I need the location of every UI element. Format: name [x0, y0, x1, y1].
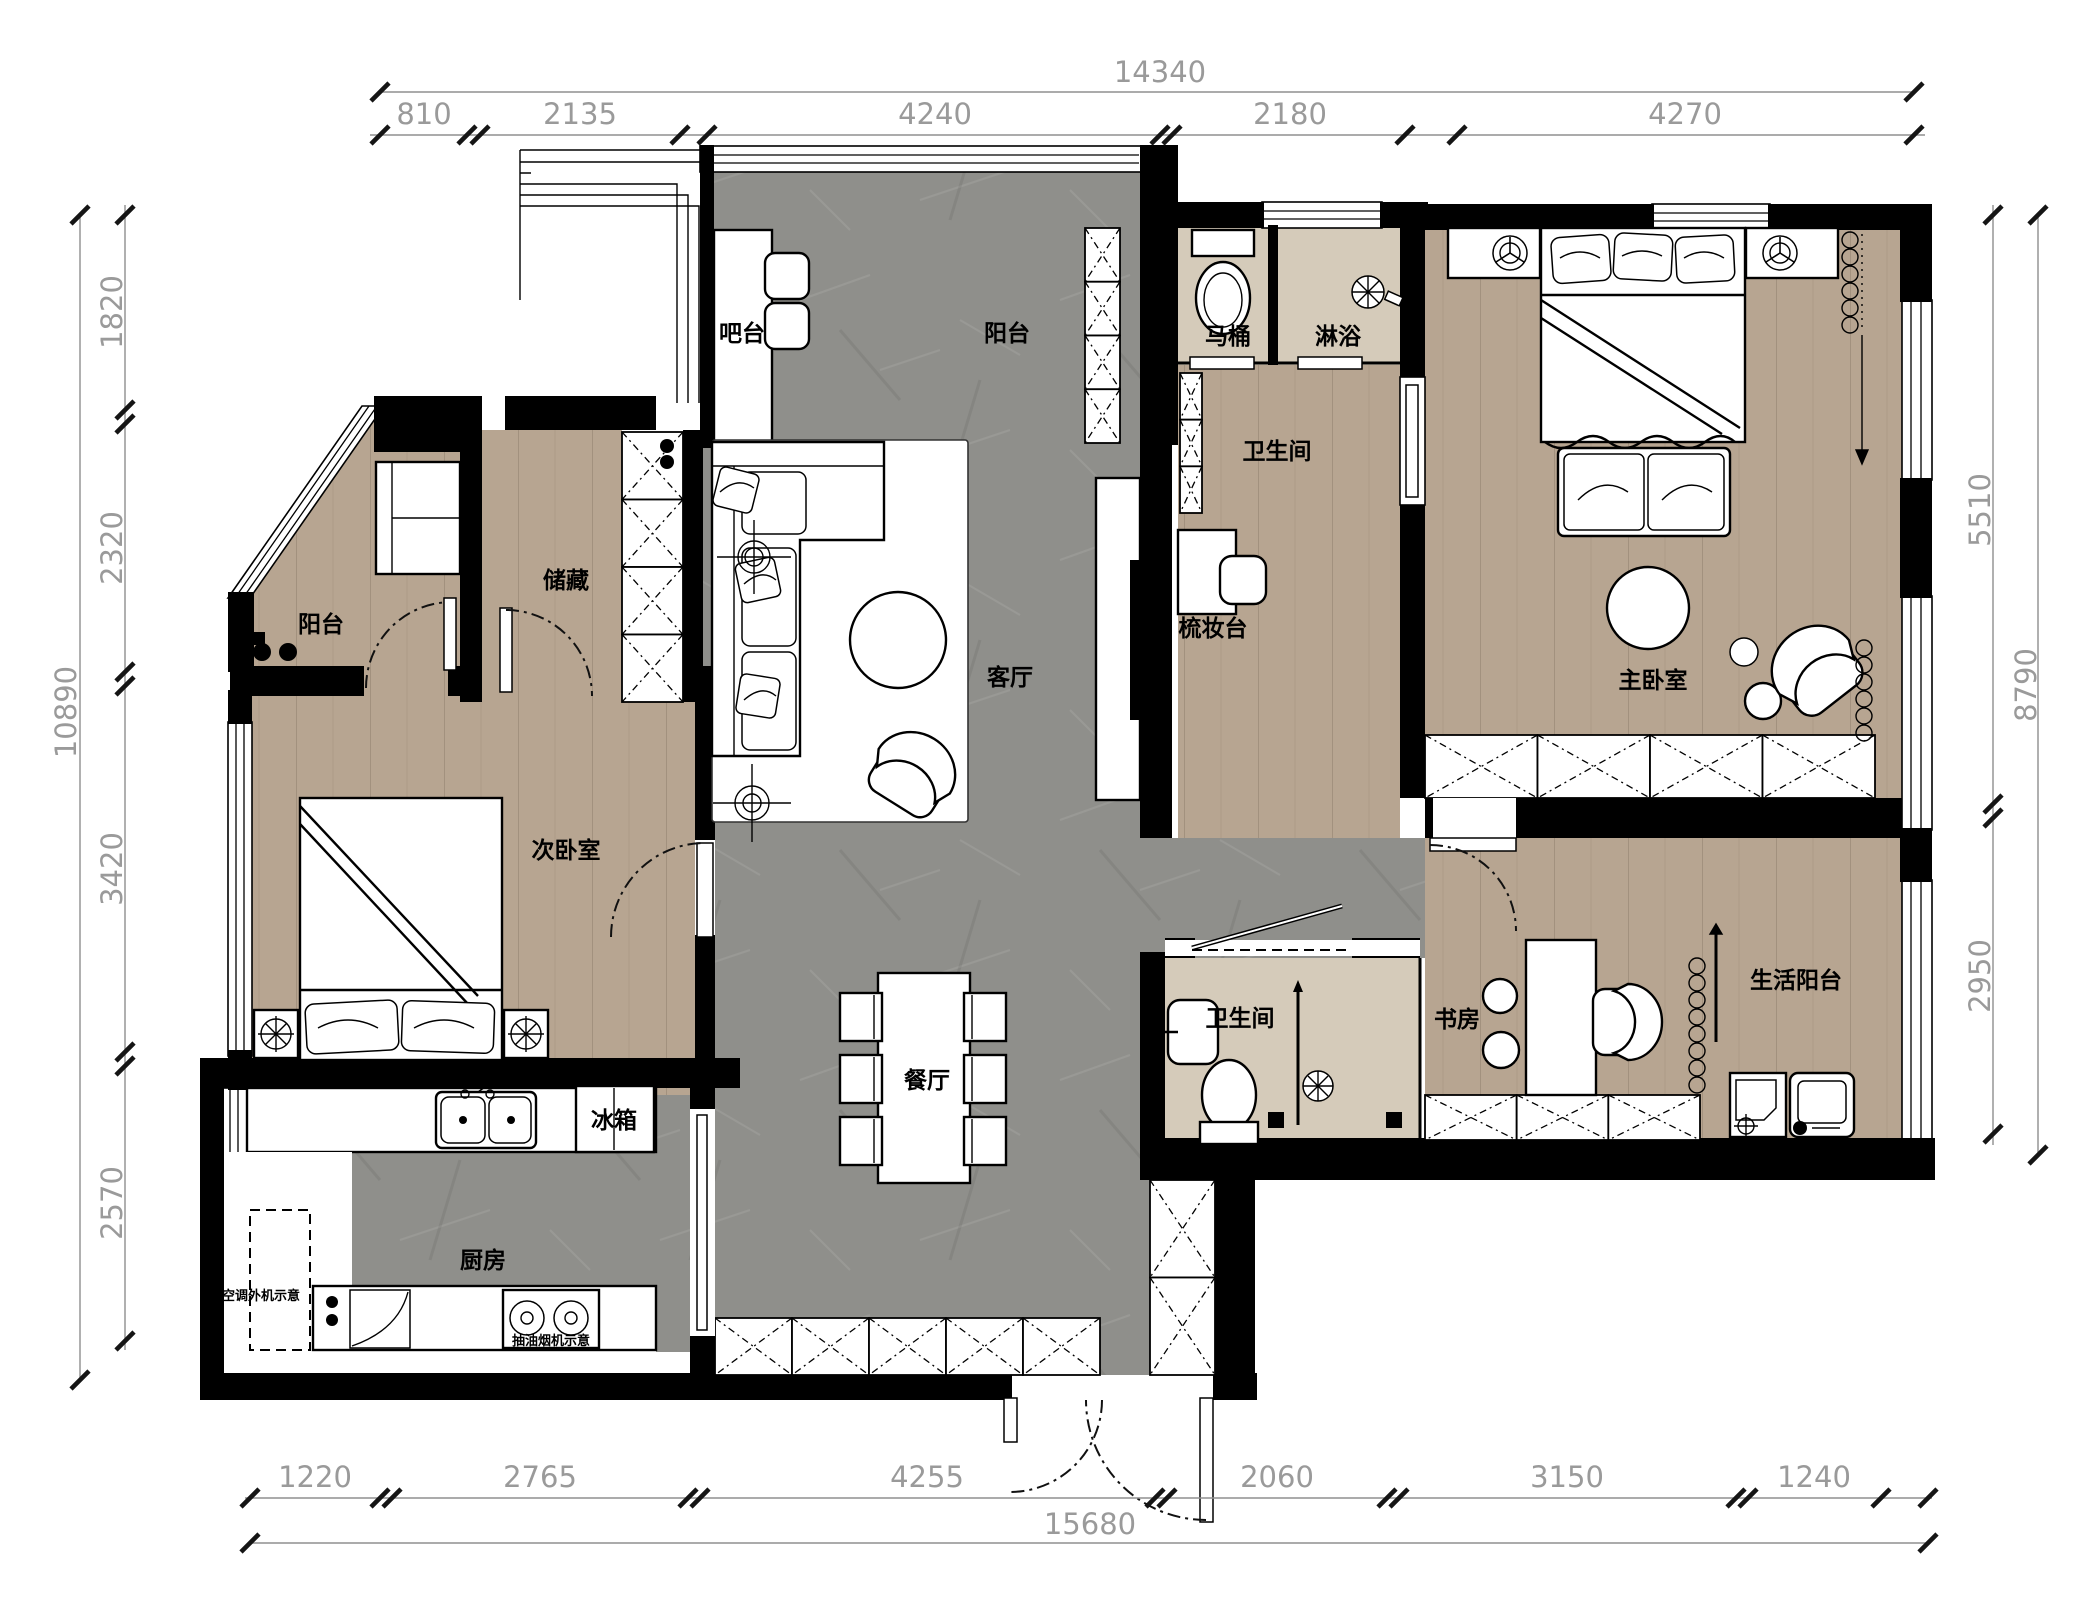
toilet-fixture — [1192, 230, 1254, 334]
dim-bottom-3: 2060 — [1240, 1460, 1314, 1494]
label-master-bedroom: 主卧室 — [1619, 667, 1688, 694]
dining-chair — [964, 1117, 1006, 1165]
dim-left-2: 3420 — [95, 832, 129, 906]
dim-bottom-overall: 15680 — [1044, 1507, 1136, 1541]
label-shower-room: 淋浴 — [1315, 324, 1362, 350]
dining-chair — [964, 993, 1006, 1041]
round-rug — [1607, 567, 1689, 649]
door-leaf-storage — [500, 608, 512, 692]
floor-plan-canvas: 吧台 阳台 马桶 淋浴 卫生间 梳妆台 主卧室 储藏 阳台 客厅 次卧室 餐厅 … — [0, 0, 2080, 1615]
label-living: 客厅 — [987, 664, 1033, 691]
label-bar: 吧台 — [719, 320, 765, 347]
dim-bottom-5: 1240 — [1777, 1460, 1851, 1494]
lamp-icon-right — [1763, 236, 1797, 270]
label-second-bedroom: 次卧室 — [532, 837, 601, 864]
dim-top-overall: 14340 — [1114, 55, 1206, 89]
dim-top-1: 2135 — [543, 97, 617, 131]
pocket-door-leaf — [1406, 385, 1418, 497]
dim-right-1: 2950 — [1963, 939, 1997, 1013]
label-bathroom-guest: 卫生间 — [1206, 1006, 1275, 1032]
label-toilet-room: 马桶 — [1205, 324, 1251, 350]
plant-pot-icon — [253, 643, 271, 661]
dim-right-0: 5510 — [1963, 473, 1997, 547]
desk-chair — [1593, 984, 1662, 1060]
cabinet-handle — [660, 439, 674, 453]
label-range-hood: 抽油烟机示意 — [512, 1333, 590, 1349]
floor-kitchen — [352, 1151, 690, 1286]
dim-bottom-4: 3150 — [1530, 1460, 1604, 1494]
dining-chair — [964, 1055, 1006, 1103]
window-bedroom-west — [228, 722, 252, 1056]
shower-head-icon — [1303, 1071, 1333, 1101]
dim-left-overall: 10890 — [49, 666, 83, 758]
window-master-north — [1652, 204, 1770, 230]
window-bath-north — [1262, 202, 1382, 228]
plant-pot-icon — [279, 643, 297, 661]
cabinet-handle — [660, 455, 674, 469]
door-leaf-bedroom2 — [697, 843, 713, 937]
label-kitchen: 厨房 — [460, 1247, 506, 1274]
dining-chair — [840, 993, 882, 1041]
label-balcony-left: 阳台 — [298, 611, 344, 638]
toilet-fixture — [1200, 1060, 1258, 1144]
dim-left-3: 2570 — [95, 1166, 129, 1240]
washing-machine — [1790, 1073, 1854, 1137]
dining-chair — [840, 1117, 882, 1165]
door-gap-study — [1433, 798, 1516, 838]
floor-kitchen-strip — [656, 1085, 690, 1352]
master-bed-pillows — [1550, 233, 1735, 284]
ottoman — [1730, 638, 1758, 666]
pouf — [1483, 1032, 1519, 1068]
label-ac-outdoor: 空调外机示意 — [222, 1288, 300, 1304]
label-vanity: 梳妆台 — [1179, 615, 1248, 642]
window-master-east-2 — [1902, 596, 1932, 830]
door-sliding-kitchen — [690, 1109, 715, 1336]
double-sink — [436, 1082, 536, 1148]
label-bathroom-master: 卫生间 — [1243, 439, 1312, 465]
label-dining: 餐厅 — [904, 1068, 950, 1094]
dim-bottom-1: 2765 — [503, 1460, 577, 1494]
dim-left-0: 1820 — [95, 275, 129, 349]
dim-top-0: 810 — [396, 97, 451, 131]
coffee-table — [850, 592, 946, 688]
label-balcony-top: 阳台 — [984, 320, 1030, 347]
window-north-balcony — [700, 146, 1142, 172]
dim-bottom-2: 4255 — [890, 1460, 964, 1494]
study-desk — [1526, 940, 1596, 1095]
tv — [1130, 560, 1139, 720]
dining-chair — [840, 1055, 882, 1103]
laundry-sink — [1730, 1073, 1786, 1138]
door-entry-double — [1004, 1398, 1213, 1522]
exterior-contour-lines — [520, 150, 700, 403]
dim-top-3: 2180 — [1253, 97, 1327, 131]
dim-right-overall: 8790 — [2009, 648, 2043, 722]
dim-top-4: 4270 — [1648, 97, 1722, 131]
window-master-east-1 — [1902, 300, 1932, 480]
lamp-icon-left — [1493, 236, 1527, 270]
label-storage: 储藏 — [543, 567, 589, 594]
label-fridge: 冰箱 — [591, 1107, 637, 1134]
door-leaf-study — [1430, 838, 1516, 851]
dim-bottom-0: 1220 — [278, 1460, 352, 1494]
label-study: 书房 — [1434, 1006, 1480, 1033]
floor-plan-page: 吧台 阳台 马桶 淋浴 卫生间 梳妆台 主卧室 储藏 阳台 客厅 次卧室 餐厅 … — [0, 0, 2080, 1615]
window-balcony-east — [1902, 880, 1932, 1140]
pouf — [1483, 979, 1517, 1013]
dim-left-1: 2320 — [95, 511, 129, 585]
dim-top-2: 4240 — [898, 97, 972, 131]
door-leaf-balcony-left — [444, 598, 456, 670]
label-service-balcony: 生活阳台 — [1750, 967, 1842, 994]
plant-box-icon — [252, 632, 265, 645]
